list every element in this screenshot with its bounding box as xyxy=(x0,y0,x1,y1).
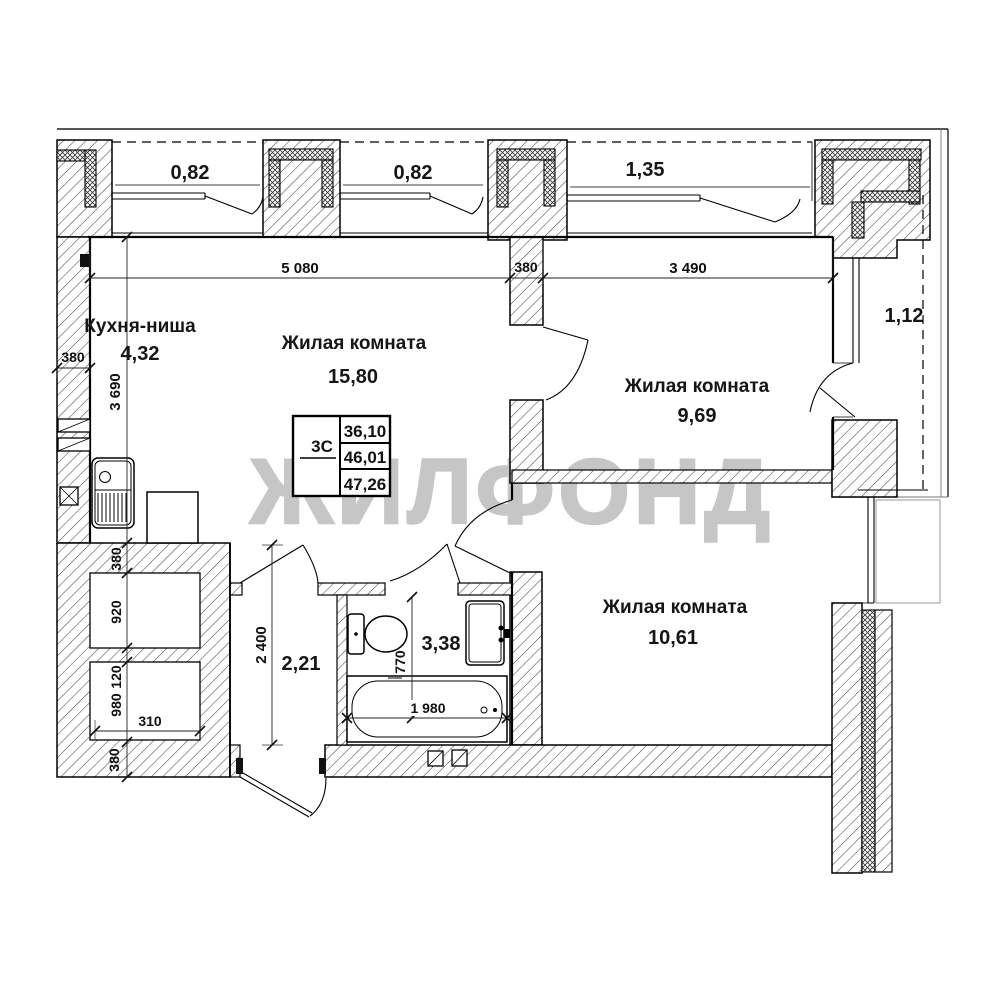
dim-120: 120 xyxy=(108,665,124,689)
wall-right-lower xyxy=(832,603,862,873)
wall-under-balcony xyxy=(832,420,897,497)
dim-2400: 2 400 xyxy=(253,626,270,664)
label-living-right-area: 9,69 xyxy=(678,405,717,427)
wardrobe-niche-upper xyxy=(90,573,200,648)
wall-mid-upper xyxy=(510,237,543,325)
dim-3490: 3 490 xyxy=(669,260,707,277)
insulation-strip xyxy=(497,149,555,160)
dim-380-niche-top: 380 xyxy=(108,547,124,571)
label-balcony2-area: 0,82 xyxy=(394,162,433,184)
wall-bottom xyxy=(325,745,832,777)
floor-plan: ЖИЛФОНД xyxy=(0,0,1000,1000)
dim-380-top: 380 xyxy=(514,259,538,275)
table-living-area: 36,10 xyxy=(344,422,387,441)
wall-right-outer-leaf xyxy=(875,610,892,872)
bathroom-sink xyxy=(466,601,510,665)
label-living-main-name: Жилая комната xyxy=(281,333,427,354)
insulation-strip xyxy=(852,202,864,238)
table-floor-area: 46,01 xyxy=(344,448,387,467)
dim-380-left: 380 xyxy=(61,349,85,365)
insulation-strip xyxy=(822,160,833,204)
insulation-strip xyxy=(322,160,333,207)
insulation-strip xyxy=(822,149,921,160)
dim-770: 770 xyxy=(392,650,408,674)
table-total-area: 47,26 xyxy=(344,475,387,494)
insulation-strip xyxy=(269,149,333,160)
kitchen-sink xyxy=(92,458,134,528)
label-hallway-area: 2,21 xyxy=(282,653,321,675)
label-living-bottom-area: 10,61 xyxy=(648,627,698,649)
toilet xyxy=(348,614,407,654)
insulation-strip xyxy=(862,610,875,872)
door-jamb xyxy=(236,758,243,774)
dim-980: 980 xyxy=(108,693,124,717)
kitchen-cabinet xyxy=(147,492,198,543)
dim-380-bottom: 380 xyxy=(106,748,122,772)
wall-bathroom-right xyxy=(510,572,542,745)
label-living-bottom-name: Жилая комната xyxy=(602,597,748,618)
electric-panel xyxy=(80,254,90,267)
wall-divider-969-1061 xyxy=(512,470,832,483)
label-bathroom-area: 3,38 xyxy=(422,633,461,655)
insulation-strip xyxy=(861,191,920,202)
label-kitchen-area: 4,32 xyxy=(121,343,160,365)
dim-920: 920 xyxy=(108,600,124,624)
label-balcony1-area: 0,82 xyxy=(171,162,210,184)
dim-5080: 5 080 xyxy=(281,260,319,277)
label-living-main-area: 15,80 xyxy=(328,366,378,388)
insulation-strip xyxy=(544,160,555,206)
dim-1980: 1 980 xyxy=(410,700,445,716)
label-kitchen-name: Кухня-ниша xyxy=(84,316,196,337)
label-living-right-name: Жилая комната xyxy=(624,376,770,397)
dim-310: 310 xyxy=(138,713,162,729)
insulation-strip xyxy=(497,160,508,207)
insulation-strip xyxy=(85,150,96,207)
dim-3690: 3 690 xyxy=(107,373,124,411)
wall-band-right xyxy=(458,583,512,595)
label-balcony-right-area: 1,12 xyxy=(885,305,924,327)
info-table: 3С 36,10 46,01 47,26 xyxy=(293,416,390,496)
wall-band-stub xyxy=(230,583,242,595)
label-balcony3-area: 1,35 xyxy=(626,159,665,181)
insulation-strip xyxy=(269,160,280,207)
door-jamb xyxy=(319,758,326,774)
table-flat-type: 3С xyxy=(311,437,333,456)
wall-band-mid xyxy=(318,583,385,595)
